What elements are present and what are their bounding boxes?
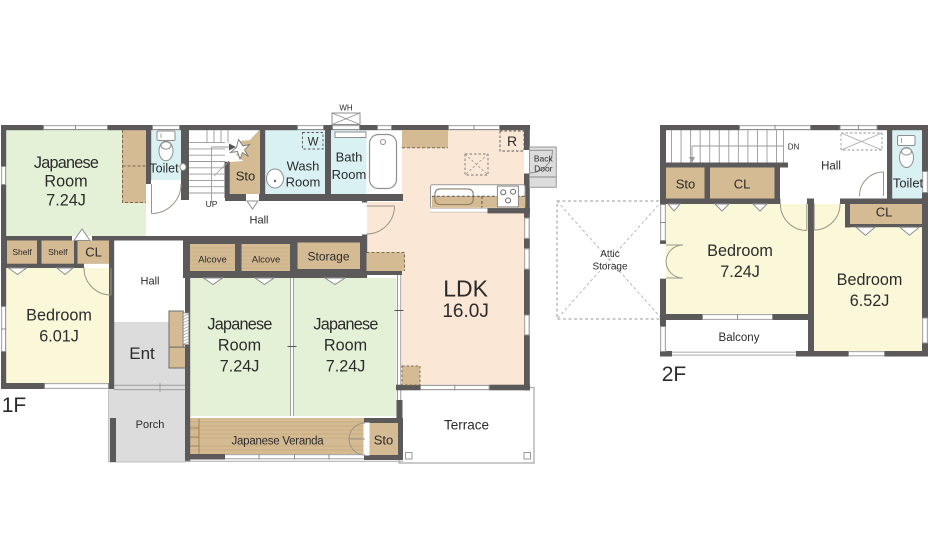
- svg-text:Attic: Attic: [600, 249, 619, 260]
- svg-text:W: W: [308, 137, 319, 149]
- svg-text:Back: Back: [534, 154, 554, 164]
- svg-text:Door: Door: [534, 164, 553, 174]
- svg-text:7.24J: 7.24J: [326, 358, 366, 376]
- svg-text:Shelf: Shelf: [48, 247, 68, 257]
- svg-text:1F: 1F: [2, 394, 27, 417]
- svg-text:CL: CL: [876, 205, 893, 220]
- svg-text:Room: Room: [44, 173, 87, 191]
- svg-text:Bedroom: Bedroom: [837, 271, 903, 289]
- svg-text:Alcove: Alcove: [198, 255, 227, 266]
- svg-text:Hall: Hall: [141, 275, 160, 287]
- svg-text:Storage: Storage: [307, 249, 349, 263]
- svg-text:16.0J: 16.0J: [442, 301, 488, 322]
- svg-text:Sto: Sto: [236, 168, 256, 183]
- svg-text:Room: Room: [218, 337, 261, 355]
- svg-text:LDK: LDK: [443, 276, 488, 302]
- svg-text:Japanese: Japanese: [313, 316, 378, 334]
- svg-text:Sto: Sto: [374, 433, 394, 448]
- svg-text:Terrace: Terrace: [444, 418, 489, 433]
- svg-text:2F: 2F: [662, 363, 687, 386]
- svg-text:Sto: Sto: [676, 177, 696, 192]
- svg-text:Toilet: Toilet: [149, 162, 179, 176]
- svg-text:6.52J: 6.52J: [850, 292, 890, 310]
- svg-text:R: R: [507, 133, 517, 149]
- svg-text:Balcony: Balcony: [719, 332, 760, 344]
- svg-text:7.24J: 7.24J: [46, 192, 86, 210]
- svg-text:Toilet: Toilet: [893, 176, 924, 191]
- svg-text:Hall: Hall: [250, 215, 269, 227]
- svg-text:Alcove: Alcove: [252, 255, 281, 266]
- svg-text:CL: CL: [85, 245, 102, 260]
- svg-text:Ent: Ent: [129, 344, 155, 363]
- svg-text:Room: Room: [324, 337, 367, 355]
- svg-text:Porch: Porch: [136, 419, 165, 431]
- svg-text:UP: UP: [206, 199, 218, 209]
- svg-text:Storage: Storage: [592, 262, 627, 273]
- svg-text:Bath: Bath: [336, 150, 363, 165]
- svg-text:WH: WH: [339, 104, 353, 113]
- svg-text:DN: DN: [788, 143, 800, 152]
- svg-text:Shelf: Shelf: [12, 247, 32, 257]
- svg-text:Japanese Veranda: Japanese Veranda: [232, 436, 325, 448]
- svg-text:Room: Room: [286, 175, 321, 190]
- svg-text:6.01J: 6.01J: [39, 328, 79, 346]
- svg-text:Japanese: Japanese: [34, 154, 99, 172]
- svg-text:Bedroom: Bedroom: [26, 307, 92, 325]
- svg-text:Hall: Hall: [821, 161, 841, 173]
- svg-text:Wash: Wash: [287, 159, 320, 174]
- svg-text:7.24J: 7.24J: [220, 358, 260, 376]
- svg-text:7.24J: 7.24J: [720, 263, 760, 281]
- svg-text:Room: Room: [332, 167, 367, 182]
- svg-text:CL: CL: [734, 177, 751, 192]
- svg-text:Japanese: Japanese: [207, 316, 272, 334]
- svg-text:Bedroom: Bedroom: [707, 242, 773, 260]
